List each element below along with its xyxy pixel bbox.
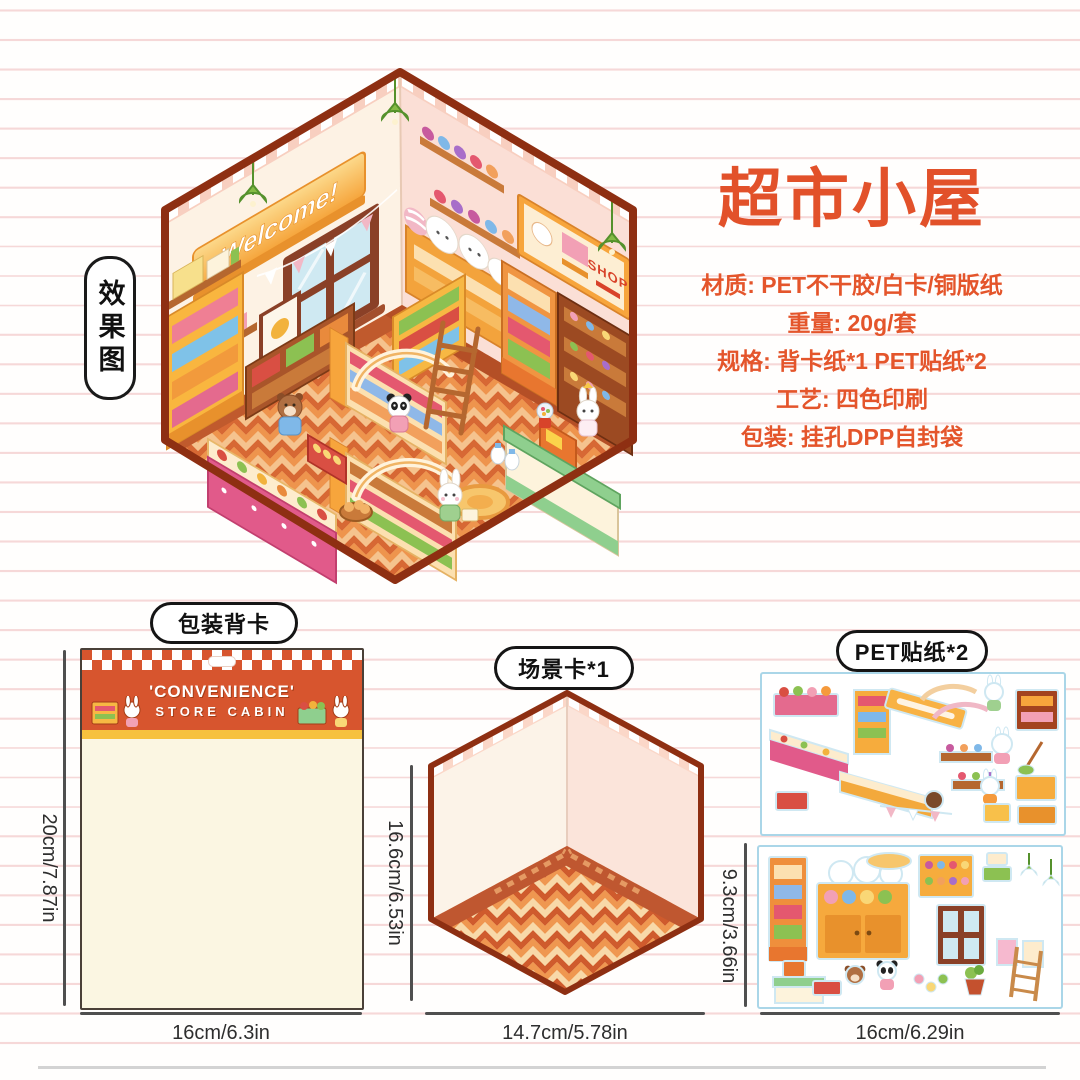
backing-width-label: 16cm/6.3in xyxy=(80,1022,362,1045)
spec-process: 工艺: 四色印刷 xyxy=(642,380,1062,418)
dimension-line-sticker-width xyxy=(760,1012,1060,1015)
sticker-shelf-small-1 xyxy=(940,744,992,762)
sticker-bunny-2 xyxy=(992,727,1012,764)
panda-character xyxy=(387,394,412,433)
card-title-line2: STORE CABIN xyxy=(155,704,288,719)
spec-material: 材质: PET不干胶/白卡/铜版纸 xyxy=(642,266,1062,304)
sticker-bear-head xyxy=(845,966,866,984)
spec-packaging: 包装: 挂孔DPP自封袋 xyxy=(642,418,1062,456)
store-illustration: Welcome! xyxy=(150,55,655,600)
sticker-arch-1 xyxy=(922,686,976,700)
dimension-line-backing-height xyxy=(63,650,66,1006)
sticker-donut xyxy=(925,791,943,809)
card-title-line1: 'CONVENIENCE' xyxy=(149,682,295,702)
sticker-bunny-1 xyxy=(985,675,1003,711)
sticker-window xyxy=(937,905,985,965)
spec-contents: 规格: 背卡纸*1 PET贴纸*2 xyxy=(642,342,1062,380)
sticker-width-label: 16cm/6.29in xyxy=(760,1022,1060,1045)
sticker-long-counter xyxy=(770,730,848,784)
sticker-rug xyxy=(867,853,911,869)
scene-height-label: 16.6cm/6.53in xyxy=(383,776,406,990)
sticker-sheets-label: PET贴纸*2 xyxy=(836,630,988,672)
card-header-art-left xyxy=(90,696,144,730)
sticker-candy-bits xyxy=(914,974,948,992)
bear-character xyxy=(277,393,303,435)
gumball-machine xyxy=(537,403,553,428)
sticker-fridge xyxy=(769,857,807,961)
sticker-envelope xyxy=(984,804,1010,822)
backing-card-label: 包装背卡 xyxy=(150,602,298,644)
sticker-sheet-2 xyxy=(757,845,1063,1009)
sticker-crate xyxy=(776,792,808,810)
backing-height-label: 20cm/7.87in xyxy=(37,762,60,974)
sticker-produce-bins xyxy=(774,686,838,716)
dimension-line-backing-width xyxy=(80,1012,362,1015)
product-title: 超市小屋 xyxy=(662,148,1042,240)
sticker-panda xyxy=(876,960,897,990)
card-yellow-strip xyxy=(82,730,362,739)
product-specs: 材质: PET不干胶/白卡/铜版纸 重量: 20g/套 规格: 背卡纸*1 PE… xyxy=(642,266,1062,456)
sticker-height-label: 9.3cm/3.66in xyxy=(717,856,740,996)
spec-weight: 重量: 20g/套 xyxy=(642,304,1062,342)
card-header: 'CONVENIENCE' STORE CABIN xyxy=(82,670,362,730)
hang-hole xyxy=(208,656,236,667)
effect-image-tag: 效果图 xyxy=(84,256,136,400)
sticker-counter-small xyxy=(1018,806,1056,824)
sticker-signboard xyxy=(1016,690,1058,730)
backing-card-preview: 'CONVENIENCE' STORE CABIN xyxy=(80,648,364,1010)
scene-card-label: 场景卡*1 xyxy=(494,646,634,690)
sticker-big-cabinet xyxy=(817,857,909,959)
sticker-jar-shelf xyxy=(919,855,973,897)
dimension-line-sticker-height xyxy=(744,843,747,1007)
sticker-sheet-1 xyxy=(760,672,1066,836)
sticker-broom xyxy=(1018,742,1042,775)
sticker-snack-rack xyxy=(1016,776,1056,800)
scene-width-label: 14.7cm/5.78in xyxy=(425,1022,705,1045)
dimension-line-scene-width xyxy=(425,1012,705,1015)
sticker-sheet-1-art xyxy=(762,674,1064,834)
scene-card-preview xyxy=(425,690,710,1006)
sticker-lamps xyxy=(1021,853,1059,885)
card-header-art-right xyxy=(296,696,354,730)
sticker-tall-shelf xyxy=(854,690,890,754)
dimension-line-scene-height xyxy=(410,765,413,1001)
sticker-crate-2 xyxy=(813,981,841,995)
sticker-sheet-2-art xyxy=(759,847,1061,1007)
sticker-box-stack xyxy=(983,853,1011,881)
sticker-plant xyxy=(965,965,985,995)
page-divider xyxy=(38,1066,1046,1069)
